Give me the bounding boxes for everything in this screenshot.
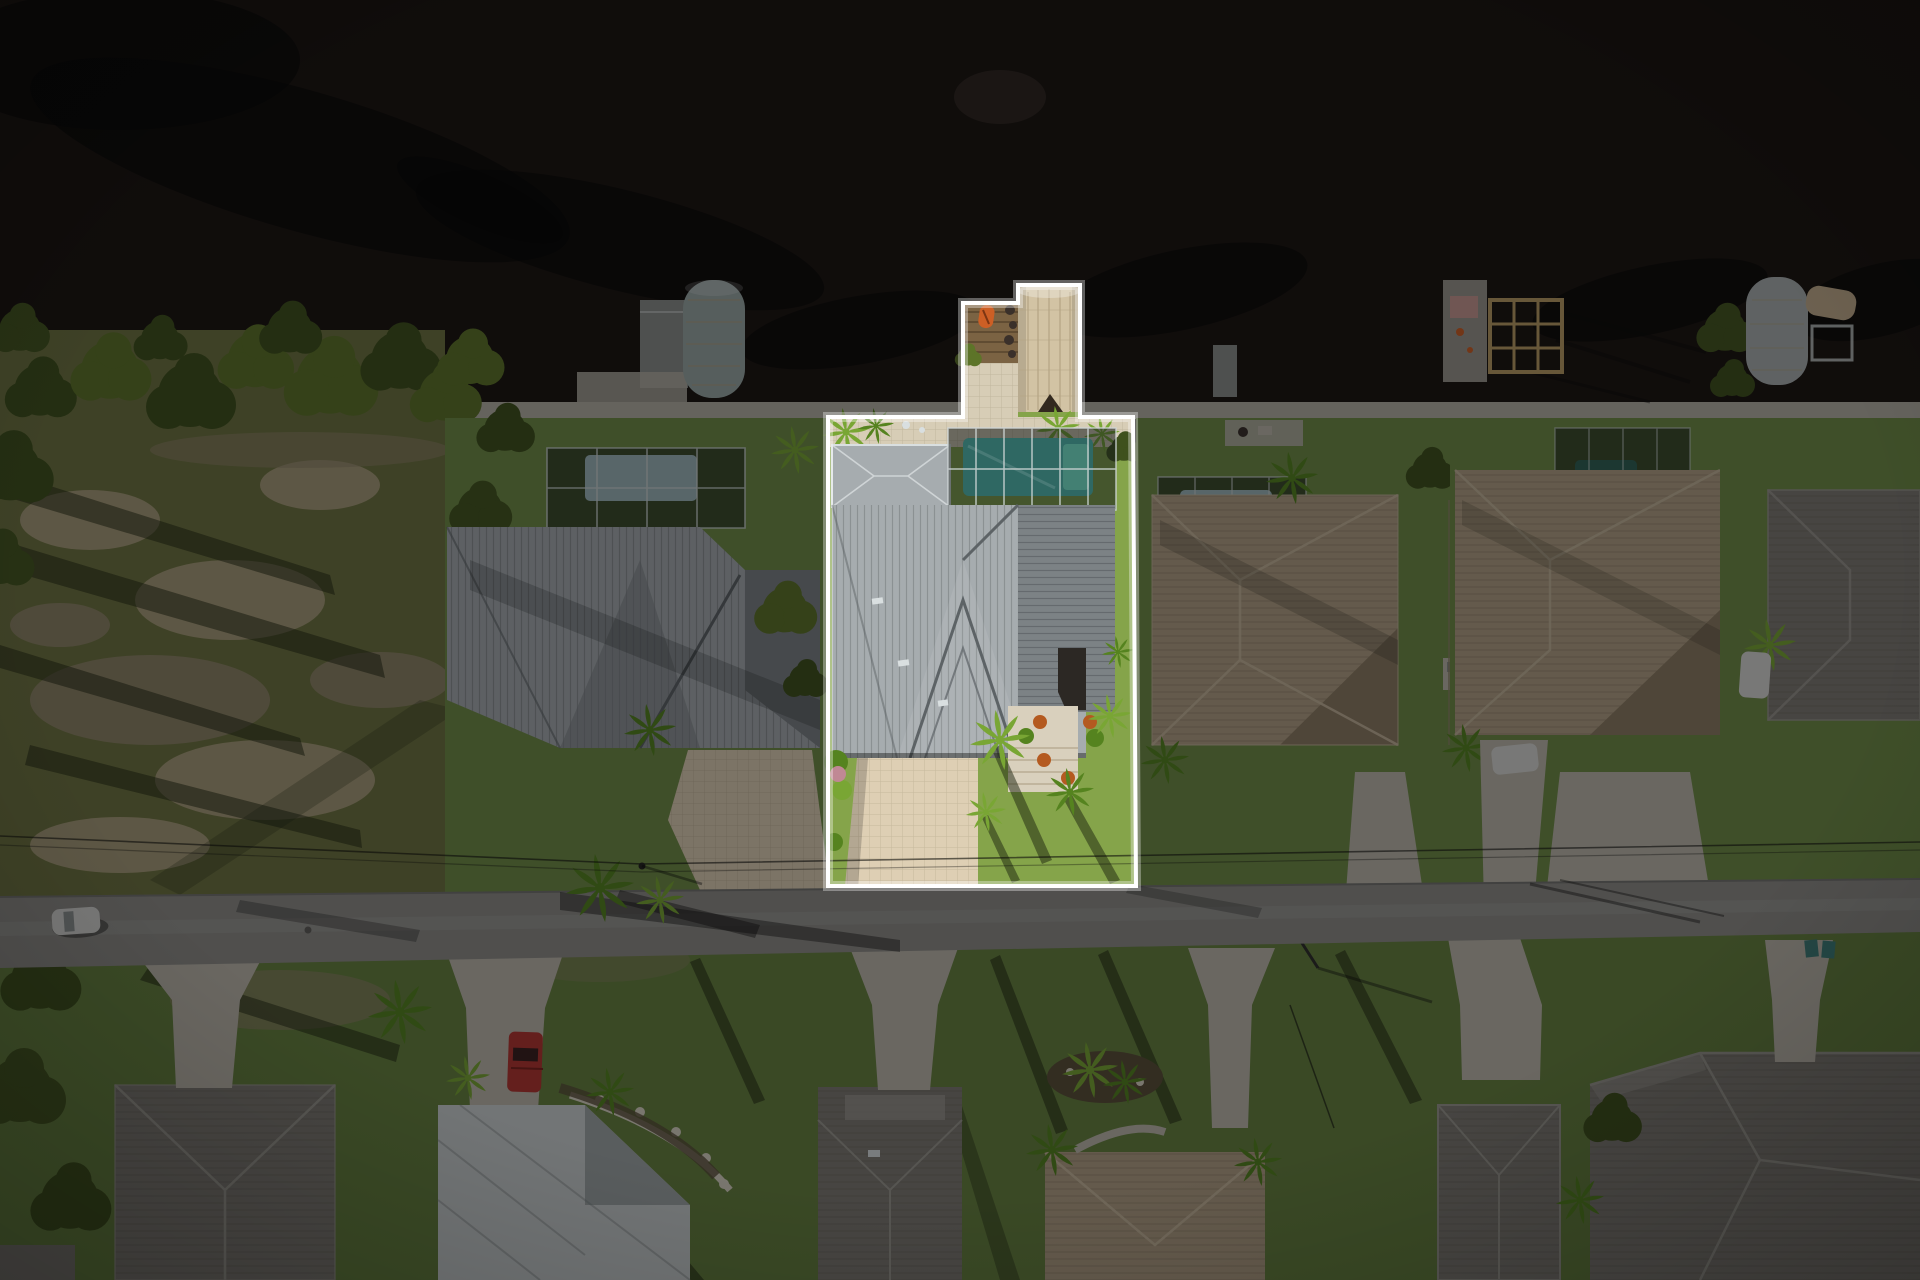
aerial-photo <box>0 0 1920 1280</box>
vignette <box>0 0 1920 1280</box>
